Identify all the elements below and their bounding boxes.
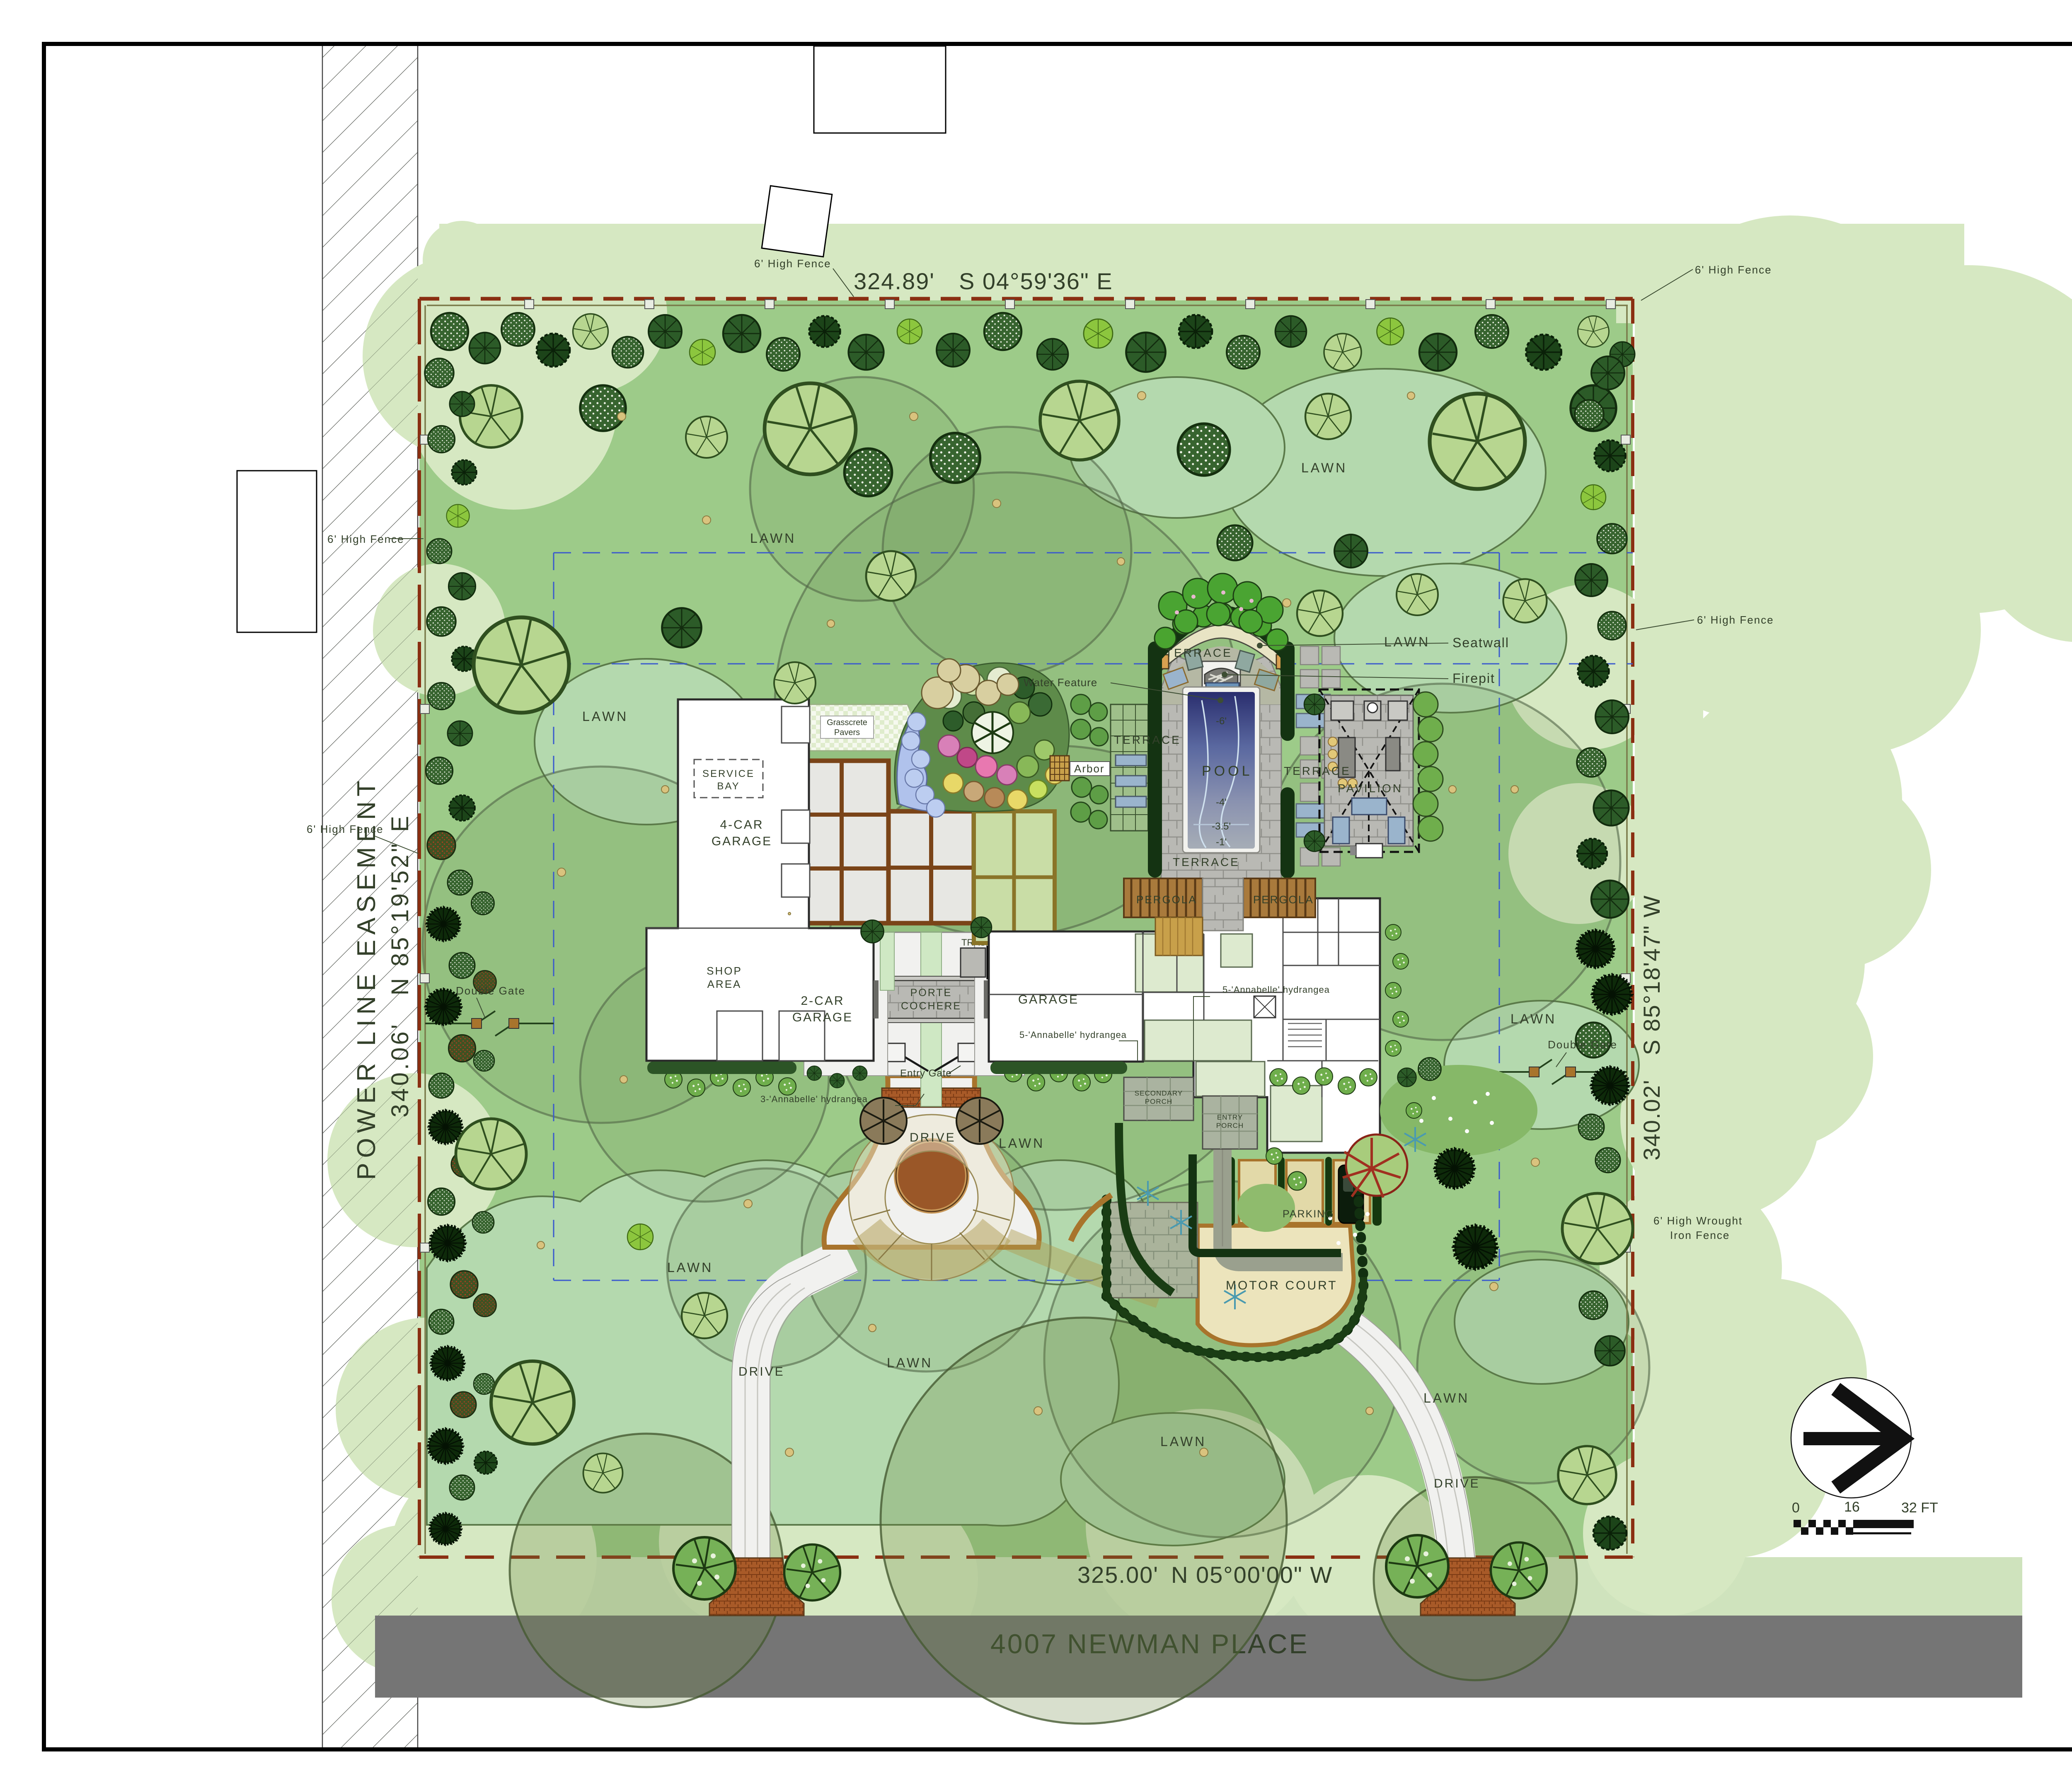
svg-text:BAY: BAY [717, 781, 740, 792]
svg-text:Entry Gate: Entry Gate [900, 1068, 952, 1079]
svg-text:-1': -1' [1216, 837, 1227, 848]
svg-text:-4': -4' [1216, 797, 1227, 808]
svg-text:LAWN: LAWN [582, 709, 628, 724]
svg-text:0: 0 [1792, 1500, 1800, 1516]
svg-text:PERGOLA: PERGOLA [1136, 893, 1197, 906]
svg-text:PAVILION: PAVILION [1338, 782, 1403, 795]
svg-text:Grasscrete: Grasscrete [827, 718, 867, 727]
svg-text:TERRACE: TERRACE [1165, 646, 1232, 659]
svg-text:TERRACE: TERRACE [1114, 733, 1181, 746]
svg-text:GARAGE: GARAGE [712, 835, 772, 848]
svg-text:LAWN: LAWN [1384, 634, 1430, 649]
svg-text:LAWN: LAWN [667, 1260, 713, 1275]
svg-text:4-CAR: 4-CAR [720, 818, 763, 832]
svg-text:MOTOR COURT: MOTOR COURT [1226, 1279, 1338, 1292]
svg-text:LAWN: LAWN [887, 1355, 933, 1370]
svg-text:3-'Annabelle' hydrangea: 3-'Annabelle' hydrangea [760, 1094, 868, 1104]
svg-text:324.89' S 04°59'36" E: 324.89' S 04°59'36" E [854, 268, 1113, 294]
svg-text:PORTE: PORTE [910, 987, 952, 999]
svg-text:PARKING: PARKING [1283, 1208, 1334, 1220]
svg-text:Pavers: Pavers [834, 728, 860, 737]
svg-text:LAWN: LAWN [750, 531, 796, 546]
svg-text:6' High Fence: 6' High Fence [754, 257, 831, 270]
svg-text:Double Gate: Double Gate [1548, 1038, 1617, 1051]
svg-text:LAWN: LAWN [1510, 1011, 1556, 1026]
svg-text:ENTRY: ENTRY [1217, 1113, 1243, 1121]
svg-text:16: 16 [1844, 1499, 1860, 1515]
svg-text:340.02' S 85°18'47" W: 340.02' S 85°18'47" W [1639, 895, 1665, 1160]
svg-text:Double Gate: Double Gate [456, 984, 525, 997]
svg-text:POOL: POOL [1202, 763, 1252, 779]
svg-text:Water Feature: Water Feature [1024, 676, 1097, 689]
svg-text:AREA: AREA [707, 978, 742, 990]
svg-text:PERGOLA: PERGOLA [1253, 893, 1314, 906]
svg-text:DRIVE: DRIVE [738, 1365, 785, 1379]
svg-text:32 FT: 32 FT [1901, 1500, 1938, 1516]
svg-text:340.06' N 85°19'52" E: 340.06' N 85°19'52" E [387, 813, 414, 1118]
svg-text:5-'Annabelle' hydrangea: 5-'Annabelle' hydrangea [1019, 1030, 1127, 1040]
svg-text:GARAGE: GARAGE [1018, 993, 1079, 1006]
svg-text:6' High Fence: 6' High Fence [1697, 614, 1774, 626]
svg-text:-3.5': -3.5' [1212, 821, 1231, 832]
svg-text:TERRACE: TERRACE [1173, 856, 1240, 868]
svg-text:GARAGE: GARAGE [792, 1011, 853, 1024]
svg-text:PORCH: PORCH [1216, 1122, 1244, 1130]
svg-text:LAWN: LAWN [1160, 1434, 1206, 1449]
svg-text:LAWN: LAWN [1423, 1391, 1469, 1405]
svg-text:6' High Wrought: 6' High Wrought [1653, 1214, 1743, 1227]
svg-text:LAWN: LAWN [1301, 460, 1347, 475]
svg-text:Firepit: Firepit [1452, 671, 1495, 686]
svg-text:6' High Fence: 6' High Fence [307, 823, 384, 835]
svg-text:PORCH: PORCH [1145, 1098, 1172, 1105]
svg-text:Iron Fence: Iron Fence [1670, 1229, 1730, 1241]
svg-text:5-'Annabelle' hydrangea: 5-'Annabelle' hydrangea [1222, 984, 1330, 995]
svg-text:DRIVE: DRIVE [910, 1131, 956, 1144]
svg-text:-6': -6' [1216, 716, 1227, 727]
svg-text:Seatwall: Seatwall [1452, 635, 1509, 650]
svg-text:325.00' N 05°00'00" W: 325.00' N 05°00'00" W [1077, 1562, 1333, 1588]
svg-text:LAWN: LAWN [999, 1136, 1045, 1151]
svg-text:Arbor: Arbor [1074, 762, 1105, 775]
svg-text:DRIVE: DRIVE [1434, 1477, 1480, 1490]
svg-text:SHOP: SHOP [707, 965, 742, 977]
svg-text:6' High Fence: 6' High Fence [1695, 264, 1772, 276]
svg-text:SECONDARY: SECONDARY [1135, 1089, 1183, 1097]
svg-text:COCHERE: COCHERE [901, 1000, 961, 1012]
svg-text:2-CAR: 2-CAR [801, 994, 844, 1008]
svg-text:SERVICE: SERVICE [702, 768, 755, 779]
svg-text:TERRACE: TERRACE [1284, 764, 1351, 777]
